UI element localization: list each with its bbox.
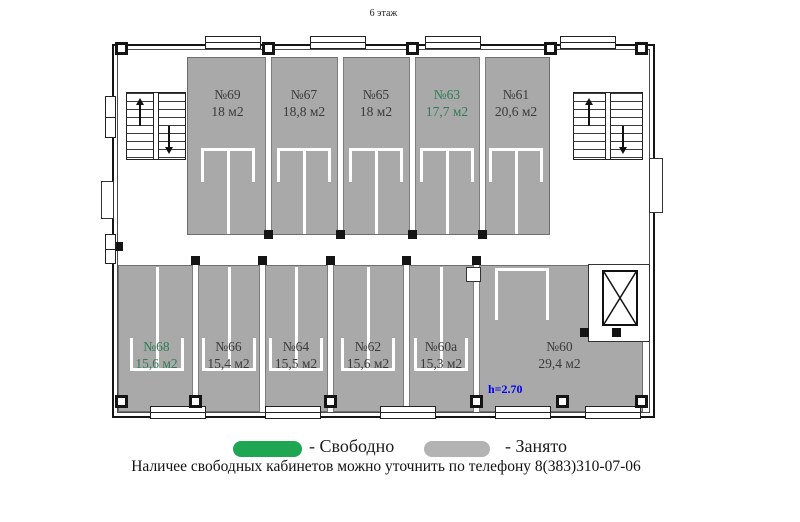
- interior-wall: [201, 148, 204, 182]
- interior-closet: [495, 268, 549, 320]
- interior-wall: [471, 148, 474, 182]
- room-label: №6029,4 м2: [538, 338, 580, 372]
- stair-up-arrow-icon: [588, 100, 590, 126]
- column: [191, 256, 200, 265]
- interior-wall: [277, 148, 280, 182]
- room-number: №60а: [420, 338, 462, 355]
- legend-free-label: - Свободно: [309, 436, 394, 457]
- top-room-band: [187, 57, 550, 235]
- room-area: 15,5 м2: [275, 355, 317, 372]
- room-number: №64: [275, 338, 317, 355]
- ceiling-height-note: h=2.70: [488, 382, 523, 397]
- interior-wall: [420, 148, 423, 182]
- interior-wall: [375, 148, 378, 234]
- window: [425, 36, 481, 49]
- interior-wall: [489, 148, 492, 182]
- column: [580, 328, 589, 337]
- legend-free-swatch: [233, 441, 302, 457]
- column-marker: [324, 395, 337, 408]
- interior-wall: [202, 338, 205, 371]
- room-number: №66: [207, 338, 249, 355]
- column: [472, 256, 481, 265]
- room-number: №62: [347, 338, 389, 355]
- column: [258, 256, 267, 265]
- window: [265, 406, 321, 419]
- column-marker: [556, 395, 569, 408]
- window: [205, 36, 261, 49]
- room-number: №68: [135, 338, 177, 355]
- column: [408, 230, 417, 239]
- room-number: №60: [538, 338, 580, 355]
- interior-wall: [392, 338, 395, 371]
- room-area: 18 м2: [211, 103, 243, 120]
- window: [310, 36, 366, 49]
- interior-wall: [269, 338, 272, 371]
- room-label: №6718,8 м2: [283, 86, 325, 120]
- room-partition-wall: [259, 265, 266, 412]
- legend-occupied-label: - Занято: [505, 436, 567, 457]
- floor-title: 6 этаж: [112, 8, 655, 19]
- stair-down-arrow-icon: [622, 126, 624, 152]
- balcony: [101, 181, 114, 219]
- room-label: №6415,5 м2: [275, 338, 317, 372]
- room-partition-wall: [409, 57, 416, 235]
- room-label: №60а15,3 м2: [420, 338, 462, 372]
- room-partition-wall: [265, 57, 272, 235]
- interior-wall: [130, 338, 133, 371]
- interior-wall: [328, 148, 331, 182]
- window: [105, 234, 116, 264]
- column-marker: [544, 42, 557, 55]
- column: [402, 256, 411, 265]
- room-label: №6518 м2: [360, 86, 392, 120]
- room-partition-wall: [192, 265, 199, 412]
- column-marker: [189, 395, 202, 408]
- column-marker: [635, 395, 648, 408]
- room-area: 18,8 м2: [283, 103, 325, 120]
- room-area: 15,6 м2: [135, 355, 177, 372]
- room-partition-wall: [473, 265, 480, 412]
- floor-plan: h=2.70 №6918 м2№6718,8 м2№6518 м2№6317,7…: [112, 44, 655, 418]
- page: { "title": "6 этаж", "floor_plan": { "to…: [0, 0, 800, 522]
- column-marker: [262, 42, 275, 55]
- interior-wall: [227, 148, 230, 234]
- column-marker: [115, 395, 128, 408]
- window: [380, 406, 436, 419]
- room-area: 18 м2: [360, 103, 392, 120]
- column-marker: [115, 42, 128, 55]
- room-partition-wall: [327, 265, 334, 412]
- stair-divider: [605, 93, 611, 159]
- room-area: 15,6 м2: [347, 355, 389, 372]
- window: [105, 96, 116, 138]
- window: [495, 406, 551, 419]
- room-label: №6815,6 м2: [135, 338, 177, 372]
- elevator-x-icon: [604, 272, 636, 324]
- interior-wall: [252, 148, 255, 182]
- interior-wall: [540, 148, 543, 182]
- room-number: №65: [360, 86, 392, 103]
- room-partition-wall: [403, 265, 410, 412]
- room-label: №6120,6 м2: [495, 86, 537, 120]
- stair-down-arrow-icon: [168, 126, 170, 152]
- window: [585, 406, 641, 419]
- interior-wall: [341, 338, 344, 371]
- column: [478, 230, 487, 239]
- room-label: №6918 м2: [211, 86, 243, 120]
- room-number: №69: [211, 86, 243, 103]
- column: [264, 230, 273, 239]
- balcony: [649, 158, 663, 213]
- availability-note: Наличее свободных кабинетов можно уточни…: [0, 458, 772, 476]
- room-area: 17,7 м2: [426, 103, 468, 120]
- column: [612, 328, 621, 337]
- room-label: №6317,7 м2: [426, 86, 468, 120]
- interior-wall: [465, 338, 468, 371]
- interior-wall: [253, 338, 256, 371]
- interior-wall: [515, 148, 518, 234]
- stair-divider: [153, 93, 159, 159]
- room-partition-wall: [479, 57, 486, 235]
- room-number: №63: [426, 86, 468, 103]
- interior-box: [466, 267, 481, 282]
- room-area: 15,4 м2: [207, 355, 249, 372]
- column-marker: [470, 395, 483, 408]
- interior-wall: [181, 338, 184, 371]
- staircase-left: [126, 92, 186, 160]
- interior-wall: [320, 338, 323, 371]
- room-partition-wall: [337, 57, 344, 235]
- interior-wall: [446, 148, 449, 234]
- room-number: №61: [495, 86, 537, 103]
- interior-wall: [414, 338, 417, 371]
- room-label: №6215,6 м2: [347, 338, 389, 372]
- room-area: 15,3 м2: [420, 355, 462, 372]
- interior-wall: [349, 148, 352, 182]
- window: [560, 36, 616, 49]
- column-marker: [635, 42, 648, 55]
- column: [336, 230, 345, 239]
- interior-wall: [303, 148, 306, 234]
- interior-wall: [400, 148, 403, 182]
- room-area: 20,6 м2: [495, 103, 537, 120]
- column-marker: [406, 42, 419, 55]
- stair-up-arrow-icon: [139, 100, 141, 126]
- legend-occupied-swatch: [424, 441, 490, 457]
- room-area: 29,4 м2: [538, 355, 580, 372]
- room-number: №67: [283, 86, 325, 103]
- elevator-shaft: [602, 270, 638, 326]
- room-label: №6615,4 м2: [207, 338, 249, 372]
- staircase-right: [573, 92, 643, 160]
- column: [326, 256, 335, 265]
